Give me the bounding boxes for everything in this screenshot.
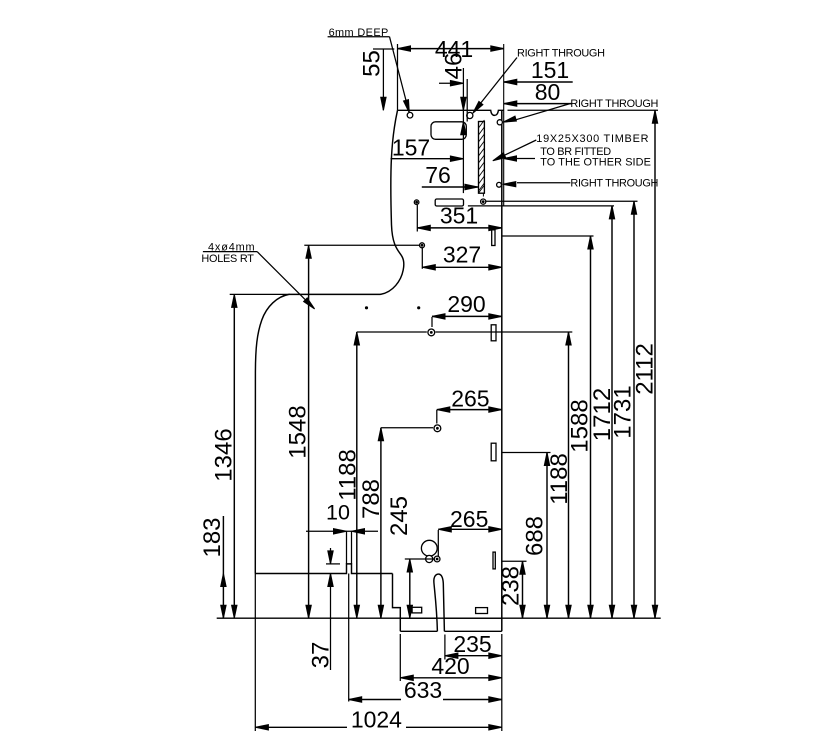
svg-text:37: 37 <box>308 642 335 669</box>
svg-text:1346: 1346 <box>211 428 238 481</box>
svg-text:327: 327 <box>443 242 481 268</box>
svg-text:1024: 1024 <box>351 707 402 733</box>
svg-text:RIGHT THROUGH: RIGHT THROUGH <box>570 98 658 110</box>
svg-text:688: 688 <box>522 516 549 556</box>
svg-text:RIGHT THROUGH: RIGHT THROUGH <box>517 47 605 59</box>
svg-text:1188: 1188 <box>546 453 573 505</box>
svg-text:HOLES RT: HOLES RT <box>201 253 254 265</box>
svg-text:19X25X300 TIMBER: 19X25X300 TIMBER <box>536 133 649 145</box>
svg-text:238: 238 <box>498 566 525 606</box>
svg-text:157: 157 <box>392 135 430 161</box>
svg-text:2112: 2112 <box>632 343 659 395</box>
svg-text:1548: 1548 <box>285 405 312 458</box>
svg-text:TO THE OTHER SIDE: TO THE OTHER SIDE <box>540 157 651 169</box>
svg-text:76: 76 <box>425 162 451 188</box>
svg-text:633: 633 <box>404 677 442 703</box>
svg-text:788: 788 <box>358 479 385 519</box>
svg-text:183: 183 <box>199 517 226 557</box>
svg-text:46: 46 <box>441 53 468 80</box>
svg-text:80: 80 <box>535 79 561 105</box>
svg-text:245: 245 <box>386 496 413 536</box>
svg-text:55: 55 <box>359 50 386 77</box>
svg-text:RIGHT THROUGH: RIGHT THROUGH <box>570 178 658 190</box>
svg-text:290: 290 <box>447 291 485 317</box>
svg-text:265: 265 <box>451 386 489 412</box>
svg-text:10: 10 <box>326 501 350 525</box>
svg-text:265: 265 <box>450 506 488 532</box>
svg-text:420: 420 <box>431 653 469 679</box>
